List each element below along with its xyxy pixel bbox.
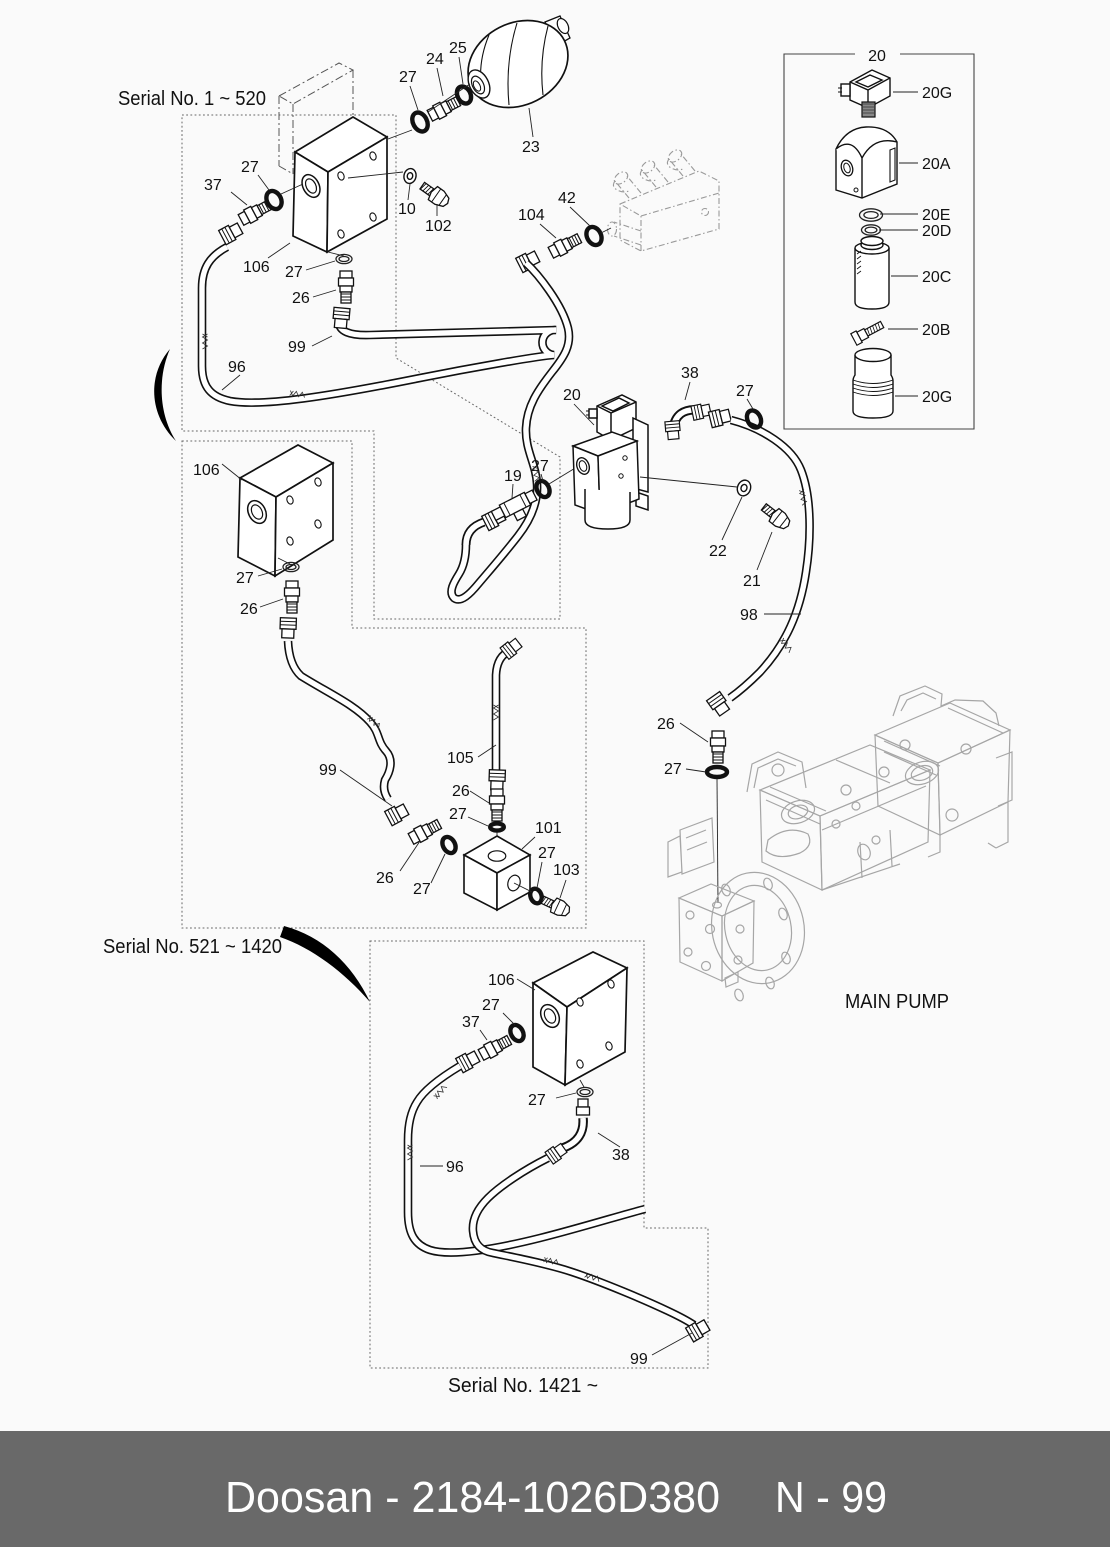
svg-text:102: 102 [425, 218, 452, 235]
svg-text:20A: 20A [922, 156, 951, 173]
svg-text:106: 106 [243, 259, 270, 276]
svg-text:MAIN PUMP: MAIN PUMP [845, 991, 949, 1013]
svg-text:24: 24 [426, 51, 444, 68]
svg-text:99: 99 [319, 762, 337, 779]
svg-text:21: 21 [743, 573, 761, 590]
svg-text:101: 101 [535, 820, 562, 837]
svg-text:Serial No. 521 ~ 1420: Serial No. 521 ~ 1420 [103, 936, 282, 958]
svg-text:37: 37 [204, 177, 222, 194]
svg-text:20C: 20C [922, 269, 951, 286]
svg-text:38: 38 [612, 1147, 630, 1164]
svg-text:103: 103 [553, 862, 580, 879]
svg-text:26: 26 [292, 290, 310, 307]
svg-text:27: 27 [285, 264, 303, 281]
svg-text:27: 27 [236, 570, 254, 587]
svg-text:26: 26 [376, 870, 394, 887]
svg-text:Serial No. 1 ~ 520: Serial No. 1 ~ 520 [118, 88, 266, 110]
svg-text:106: 106 [488, 972, 515, 989]
svg-text:38: 38 [681, 365, 699, 382]
svg-text:98: 98 [740, 607, 758, 624]
svg-text:27: 27 [528, 1092, 546, 1109]
svg-text:27: 27 [736, 383, 754, 400]
svg-text:20D: 20D [922, 223, 951, 240]
svg-text:26: 26 [452, 783, 470, 800]
svg-text:20B: 20B [922, 322, 950, 339]
svg-text:104: 104 [518, 207, 545, 224]
svg-text:96: 96 [446, 1159, 464, 1176]
svg-text:20G: 20G [922, 389, 952, 406]
svg-text:25: 25 [449, 40, 467, 57]
svg-text:20E: 20E [922, 207, 950, 224]
svg-text:26: 26 [240, 601, 258, 618]
svg-text:27: 27 [482, 997, 500, 1014]
svg-text:42: 42 [558, 190, 576, 207]
svg-text:27: 27 [538, 845, 556, 862]
svg-text:106: 106 [193, 462, 220, 479]
svg-text:N - 99: N - 99 [775, 1473, 887, 1522]
svg-text:Doosan - 2184-1026D380: Doosan - 2184-1026D380 [225, 1473, 720, 1522]
svg-text:20G: 20G [922, 85, 952, 102]
svg-text:99: 99 [630, 1351, 648, 1368]
svg-text:Serial No. 1421 ~: Serial No. 1421 ~ [448, 1375, 598, 1397]
svg-text:27: 27 [241, 159, 259, 176]
svg-text:99: 99 [288, 339, 306, 356]
svg-text:26: 26 [657, 716, 675, 733]
svg-text:23: 23 [522, 139, 540, 156]
svg-text:27: 27 [413, 881, 431, 898]
svg-text:37: 37 [462, 1014, 480, 1031]
svg-text:22: 22 [709, 543, 727, 560]
svg-text:20: 20 [868, 48, 886, 65]
svg-text:27: 27 [399, 69, 417, 86]
svg-text:96: 96 [228, 359, 246, 376]
svg-text:20: 20 [563, 387, 581, 404]
svg-text:105: 105 [447, 750, 474, 767]
svg-text:10: 10 [398, 201, 416, 218]
svg-text:27: 27 [449, 806, 467, 823]
svg-text:27: 27 [664, 761, 682, 778]
svg-text:19: 19 [504, 468, 522, 485]
